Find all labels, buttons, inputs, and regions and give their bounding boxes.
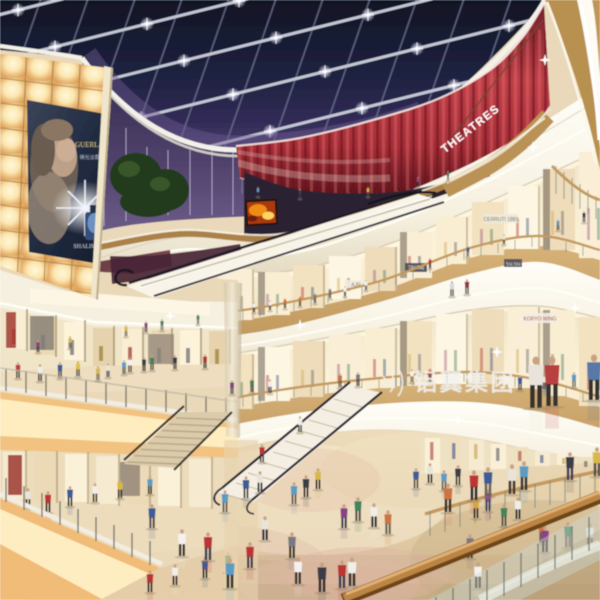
svg-text:KORYO WING: KORYO WING — [524, 317, 557, 323]
svg-text:TAI TAI: TAI TAI — [506, 262, 521, 267]
svg-text:CERRUTI 1881: CERRUTI 1881 — [484, 217, 519, 223]
svg-text:铝翼集团: 铝翼集团 — [414, 369, 516, 395]
